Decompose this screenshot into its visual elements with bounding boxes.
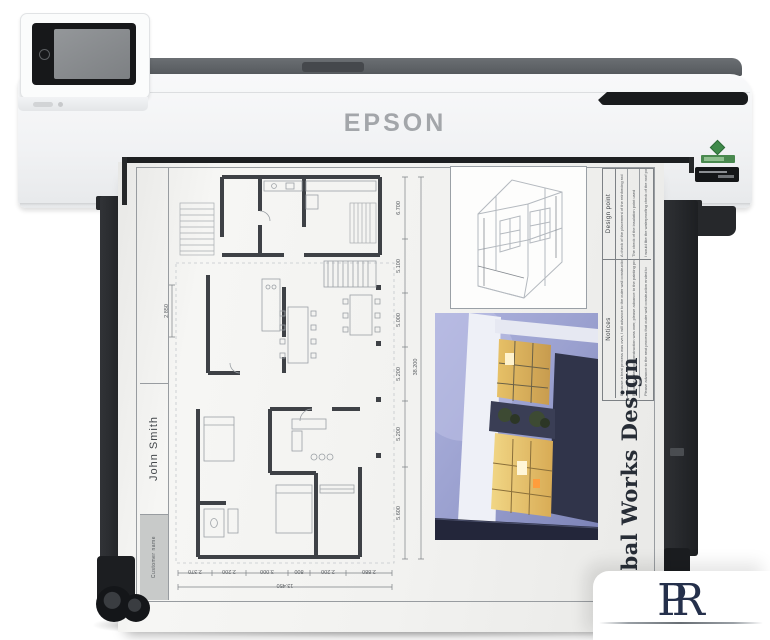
dim-bottom-2: 2.200 bbox=[222, 568, 236, 574]
customer-name-value: John Smith bbox=[148, 416, 160, 481]
roll-cover-handle bbox=[302, 62, 364, 72]
design-point-header: Design point bbox=[603, 168, 616, 259]
dim-right-1: 6.700 bbox=[396, 201, 402, 215]
dim-right-total: 38.200 bbox=[413, 359, 419, 376]
dim-right-4: 5.200 bbox=[396, 367, 402, 381]
power-button bbox=[33, 102, 53, 107]
dim-right-6: 5.600 bbox=[396, 506, 402, 520]
series-badge-detail bbox=[699, 171, 727, 173]
dim-right-3: 5.000 bbox=[396, 313, 402, 327]
stand-leg-right bbox=[660, 200, 698, 556]
design-row: I would like the waterproofing check of … bbox=[640, 168, 651, 259]
design-row: The check of the insulation point used bbox=[628, 168, 640, 259]
floor-plan-columns bbox=[376, 285, 381, 458]
wireframe-render bbox=[450, 166, 587, 309]
dimension-left: 2.850 bbox=[164, 285, 175, 337]
dim-right-5: 5.200 bbox=[396, 427, 402, 441]
dim-left-value: 2.850 bbox=[164, 304, 170, 318]
printed-sheet: John Smith Customer name bbox=[118, 162, 664, 632]
dimension-chain-bottom: 2.370 2.200 3.000 800 2.200 2.880 13.450 bbox=[178, 568, 392, 590]
monogram-letter-r: R bbox=[672, 573, 705, 629]
dim-bottom-3: 3.000 bbox=[260, 568, 274, 574]
design-row: A check of the placement of the reinforc… bbox=[616, 168, 628, 259]
black-accent-stripe bbox=[598, 92, 748, 105]
stand-logo-mark bbox=[670, 448, 684, 456]
touchscreen bbox=[54, 29, 130, 79]
dim-bottom-4: 800 bbox=[294, 568, 303, 574]
house-night-photo bbox=[435, 313, 598, 540]
series-badge-detail-2 bbox=[718, 175, 734, 178]
design-point-group: Design point A check of the placement of… bbox=[603, 168, 651, 259]
dim-bottom-1: 2.370 bbox=[188, 568, 202, 574]
dim-bottom-5: 2.200 bbox=[321, 568, 335, 574]
furniture-details bbox=[204, 181, 380, 537]
retailer-watermark-card: P R bbox=[593, 571, 770, 640]
retailer-monogram-logo: P R bbox=[641, 573, 721, 633]
customer-label: Customer name bbox=[151, 536, 157, 578]
status-led bbox=[58, 102, 63, 107]
floor-plan-drawing: 6.700 5.100 5.000 5.200 5.200 5.600 38.2… bbox=[164, 167, 436, 595]
floor-plan-walls bbox=[198, 177, 380, 557]
dim-right-2: 5.100 bbox=[396, 259, 402, 273]
dimension-chain-right: 6.700 5.100 5.000 5.200 5.200 5.600 38.2… bbox=[396, 177, 424, 559]
eco-badge-detail bbox=[704, 157, 724, 161]
slot-right-notch bbox=[689, 157, 694, 173]
paper-exit-slot bbox=[122, 157, 694, 163]
notices-header: Notices bbox=[603, 260, 616, 398]
home-button-icon bbox=[39, 49, 50, 60]
slot-left-notch bbox=[122, 157, 127, 205]
brand-logo: EPSON bbox=[332, 108, 458, 138]
stairs-hatch bbox=[180, 203, 376, 255]
caster-wheel-left-b bbox=[122, 594, 150, 622]
dim-bottom-total: 13.450 bbox=[277, 582, 294, 588]
product-photo-large-format-printer: EPSON John Smith Customer name bbox=[0, 0, 770, 640]
sheet-title-block: Global Works Design bbox=[606, 400, 652, 568]
dim-bottom-6: 2.880 bbox=[362, 568, 376, 574]
